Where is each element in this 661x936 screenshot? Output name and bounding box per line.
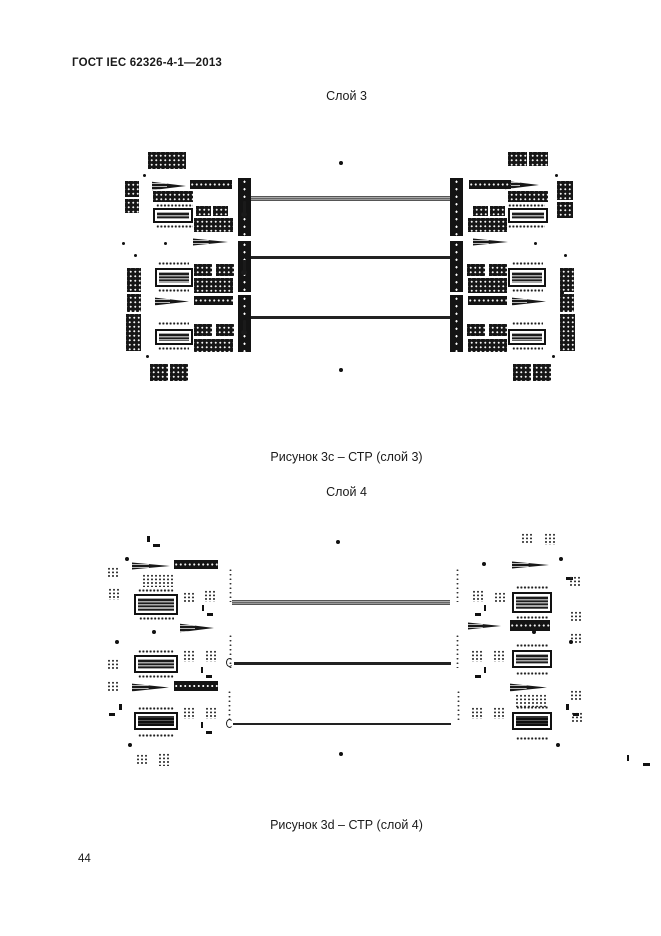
pad-dot-grid — [570, 690, 581, 701]
taper-wedge — [132, 682, 169, 693]
dash-mark — [643, 763, 650, 766]
tick-mark — [201, 722, 203, 728]
dash-mark — [207, 613, 213, 616]
pad-dot-grid — [494, 592, 505, 602]
pin-row — [516, 672, 548, 675]
trace-hook — [226, 658, 233, 667]
taper-wedge — [512, 560, 549, 570]
pin-row — [138, 707, 174, 710]
via-column — [229, 568, 232, 602]
pin-row — [516, 616, 548, 619]
pin-row — [516, 586, 548, 589]
pin-row — [138, 675, 174, 678]
dash-mark — [206, 731, 212, 734]
pad-dot-grid — [183, 592, 194, 602]
pad-dot-grid — [570, 611, 581, 622]
ic-component — [512, 592, 552, 613]
dash-mark — [475, 675, 481, 678]
fiducial-dot — [569, 640, 573, 644]
tick-mark — [484, 605, 486, 611]
pad-dot-grid — [158, 753, 171, 766]
signal-trace — [233, 723, 451, 725]
ic-component-dark — [512, 712, 552, 730]
fiducial-dot — [556, 743, 560, 747]
via-column — [456, 568, 459, 602]
fiducial-dot — [559, 557, 563, 561]
dash-mark — [475, 613, 481, 616]
pad-dot-grid — [544, 533, 557, 545]
pad-dot-grid — [569, 576, 581, 587]
ic-component — [512, 650, 552, 668]
fiducial-dot — [532, 630, 536, 634]
dash-mark — [206, 675, 212, 678]
pin-row — [139, 617, 174, 620]
pad-dot-grid — [142, 574, 173, 587]
pad-dot-grid — [108, 588, 120, 600]
tick-mark — [201, 667, 203, 673]
signal-trace-bundle — [232, 600, 450, 605]
tick-mark — [202, 605, 204, 611]
pad-dot-grid — [183, 707, 195, 719]
tick-mark — [119, 704, 122, 710]
pin-row — [516, 737, 548, 740]
fiducial-dot — [115, 640, 119, 644]
dotted-black-bar — [174, 560, 218, 569]
signal-trace — [234, 662, 451, 665]
tick-mark — [566, 704, 569, 710]
pin-row — [138, 650, 174, 653]
tick-mark — [147, 536, 150, 542]
pad-dot-grid — [472, 590, 484, 602]
via-column — [457, 690, 460, 722]
pin-row — [516, 644, 548, 647]
pad-dot-grid — [183, 650, 195, 662]
figure2-layer4-artwork — [0, 0, 661, 936]
pad-dot-grid — [205, 707, 217, 719]
pad-dot-grid — [107, 567, 119, 578]
fiducial-dot — [128, 743, 132, 747]
fiducial-dot — [339, 752, 343, 756]
pad-dot-grid — [493, 650, 505, 662]
pad-dot-grid — [471, 650, 483, 662]
pin-row — [516, 706, 548, 709]
dotted-black-bar — [510, 620, 550, 631]
pad-dot-grid — [471, 707, 483, 719]
fiducial-dot — [482, 562, 486, 566]
dotted-black-bar — [174, 681, 218, 691]
via-column — [456, 634, 459, 668]
fiducial-dot — [336, 540, 340, 544]
ic-component-dark — [134, 712, 178, 730]
via-column — [228, 690, 231, 722]
trace-hook — [226, 719, 233, 728]
ic-component — [134, 655, 178, 673]
tick-mark — [627, 755, 629, 761]
taper-wedge — [180, 622, 214, 634]
page-number: 44 — [78, 853, 91, 865]
taper-wedge — [468, 621, 501, 631]
tick-mark — [484, 667, 486, 673]
fiducial-dot — [125, 557, 129, 561]
pad-dot-grid — [204, 590, 216, 602]
pad-dot-grid — [107, 659, 118, 670]
taper-wedge — [510, 682, 547, 693]
pad-dot-grid — [521, 533, 533, 544]
pad-dot-grid — [107, 681, 118, 691]
fiducial-dot — [152, 630, 156, 634]
dash-mark — [573, 713, 579, 716]
pad-dot-grid — [493, 707, 505, 719]
figure2-caption: Рисунок 3d – СТР (слой 4) — [0, 818, 661, 832]
dash-mark — [109, 713, 115, 716]
pin-row — [138, 734, 174, 737]
ic-component — [134, 594, 178, 615]
dash-mark — [153, 544, 160, 547]
pad-dot-grid — [205, 650, 217, 662]
pin-row — [138, 589, 174, 592]
document-page: ГОСТ IEC 62326-4-1—2013 Слой 3 Рисунок 3… — [0, 0, 661, 936]
taper-wedge — [132, 561, 170, 571]
pad-dot-grid — [136, 754, 147, 765]
